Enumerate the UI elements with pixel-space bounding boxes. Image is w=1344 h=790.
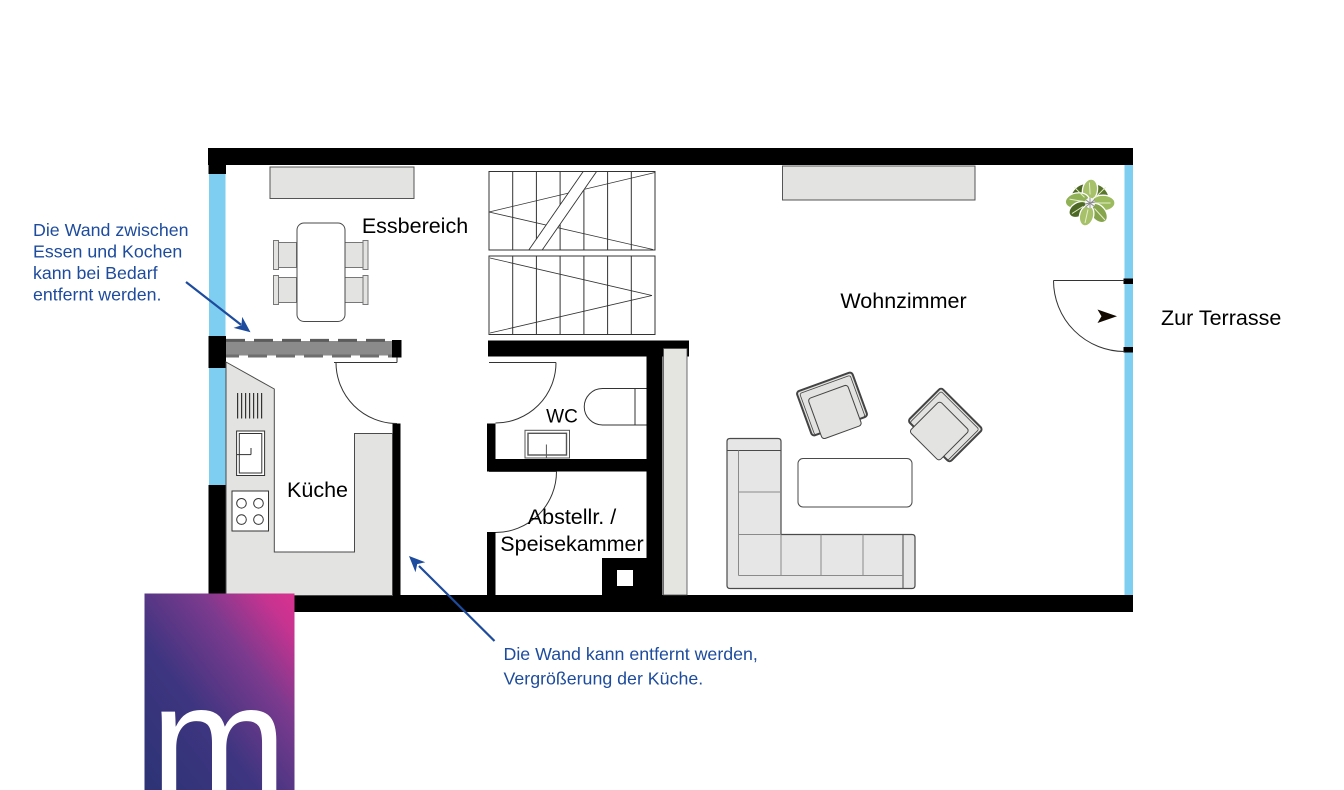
svg-text:Die Wand kann entfernt werden,: Die Wand kann entfernt werden, <box>504 644 758 664</box>
svg-text:Speisekammer: Speisekammer <box>500 532 643 556</box>
svg-text:Zur Terrasse: Zur Terrasse <box>1161 306 1281 330</box>
svg-text:WC: WC <box>546 407 578 428</box>
svg-text:Abstellr. /: Abstellr. / <box>528 505 616 529</box>
svg-text:m: m <box>151 650 288 790</box>
svg-text:entfernt werden.: entfernt werden. <box>33 285 162 305</box>
svg-text:kann bei Bedarf: kann bei Bedarf <box>33 263 158 283</box>
svg-text:Vergrößerung der Küche.: Vergrößerung der Küche. <box>504 669 704 689</box>
svg-text:Essen und Kochen: Essen und Kochen <box>33 242 182 262</box>
svg-text:Wohnzimmer: Wohnzimmer <box>840 289 966 313</box>
svg-text:Essbereich: Essbereich <box>362 214 468 238</box>
svg-text:Die Wand zwischen: Die Wand zwischen <box>33 220 188 240</box>
svg-text:Küche: Küche <box>287 478 348 502</box>
